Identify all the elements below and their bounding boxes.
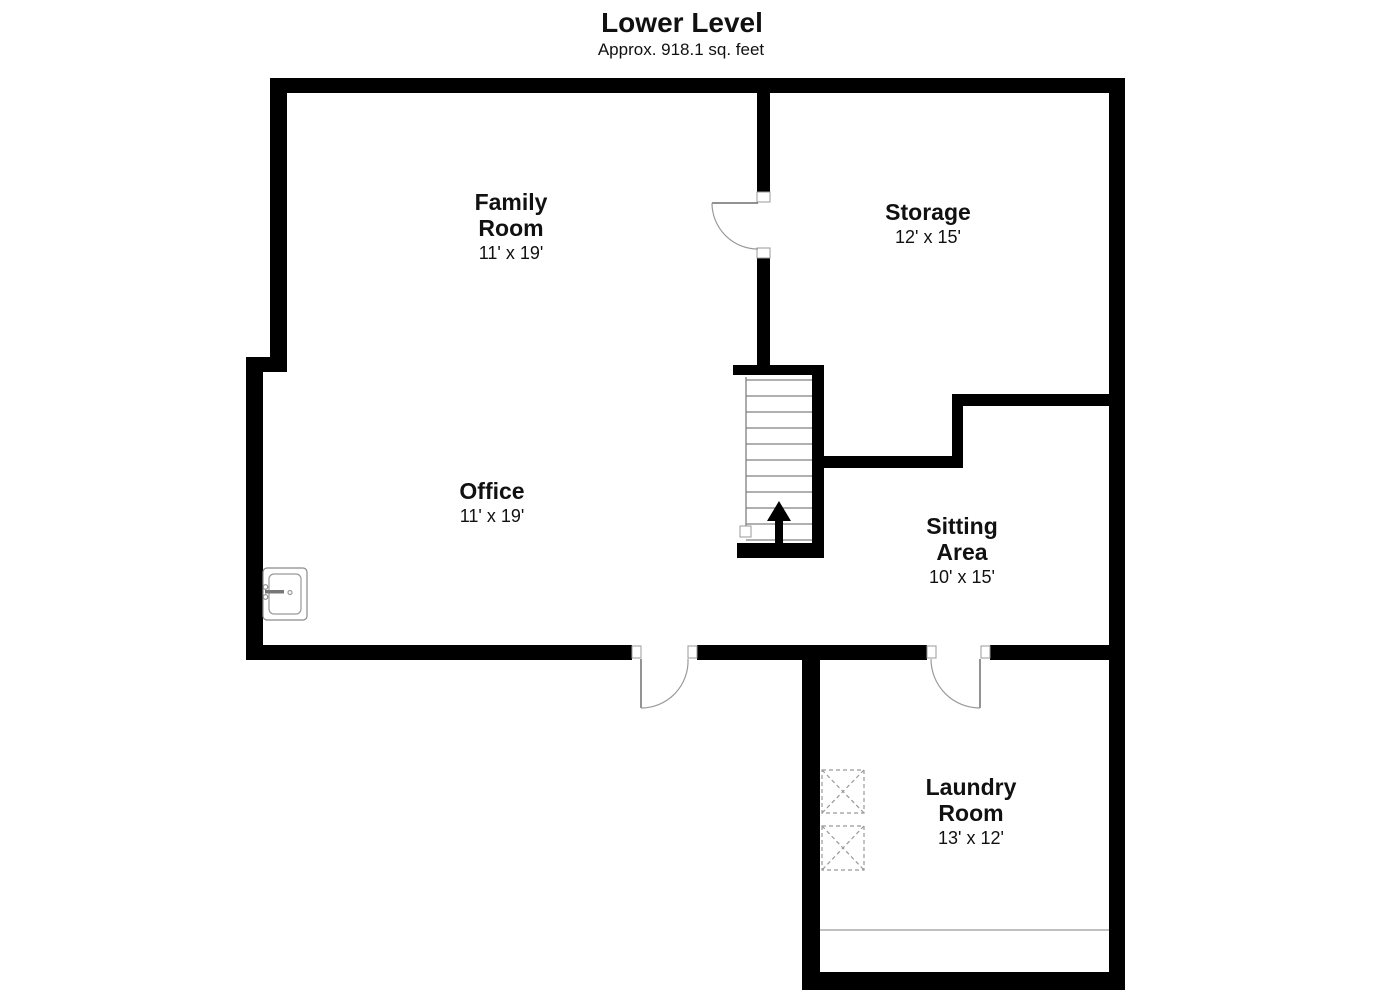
stair-wall-top (733, 365, 824, 375)
washer-box (822, 770, 864, 813)
faucet-handle (263, 585, 268, 590)
family-storage-door (712, 192, 770, 258)
floor-plan-page: Lower Level Approx. 918.1 sq. feet (0, 0, 1375, 1000)
wall-right (1109, 78, 1125, 990)
room-label-office: Office 11' x 19' (459, 478, 524, 527)
room-name: Family (475, 189, 548, 215)
stairs (740, 377, 812, 549)
floor-plan-drawing (0, 0, 1375, 1000)
wall-center-lower (757, 258, 770, 365)
office-lower-door (632, 646, 697, 708)
utility-sink-icon (263, 568, 307, 620)
room-name: Sitting (926, 513, 998, 539)
room-dimensions: 10' x 15' (926, 566, 998, 588)
room-dimensions: 12' x 15' (885, 226, 971, 248)
dryer-box (822, 826, 864, 870)
faucet-spout (265, 590, 284, 594)
room-dimensions: 11' x 19' (475, 242, 548, 264)
room-label-family-room: Family Room 11' x 19' (475, 189, 548, 264)
wall-center-upper (757, 93, 770, 192)
handrail-post (740, 526, 751, 537)
storage-wall-bottom (952, 394, 1109, 406)
wall-top (270, 78, 1125, 93)
door-swing-arc (712, 203, 758, 249)
door-jamb (688, 646, 697, 658)
door-jamb (981, 646, 990, 658)
room-label-storage: Storage 12' x 15' (885, 199, 971, 248)
door-jamb (632, 646, 641, 658)
room-name: Room (475, 215, 548, 241)
stair-wall-right (812, 365, 824, 558)
wall-bottom-left (246, 645, 632, 660)
room-name: Room (926, 800, 1017, 826)
door-jamb (757, 248, 770, 258)
faucet-handle (263, 595, 268, 600)
door-jamb (757, 192, 770, 202)
laundry-wall-left (802, 645, 820, 990)
door-swing-arc (641, 659, 688, 708)
laundry-wall-bottom (802, 972, 1125, 990)
room-dimensions: 11' x 19' (459, 505, 524, 527)
room-name: Area (926, 539, 998, 565)
door-swing-arc (931, 659, 980, 708)
room-name: Storage (885, 199, 971, 225)
room-dimensions: 13' x 12' (926, 827, 1017, 849)
room-name: Office (459, 478, 524, 504)
laundry-door (927, 646, 990, 708)
room-name: Laundry (926, 774, 1017, 800)
room-label-sitting-area: Sitting Area 10' x 15' (926, 513, 998, 588)
sitting-wall-top (824, 456, 963, 468)
wall-bottom-right (990, 645, 1125, 660)
wall-left-lower (246, 357, 263, 660)
wall-left-upper (270, 78, 287, 372)
door-jamb (927, 646, 936, 658)
room-label-laundry-room: Laundry Room 13' x 12' (926, 774, 1017, 849)
